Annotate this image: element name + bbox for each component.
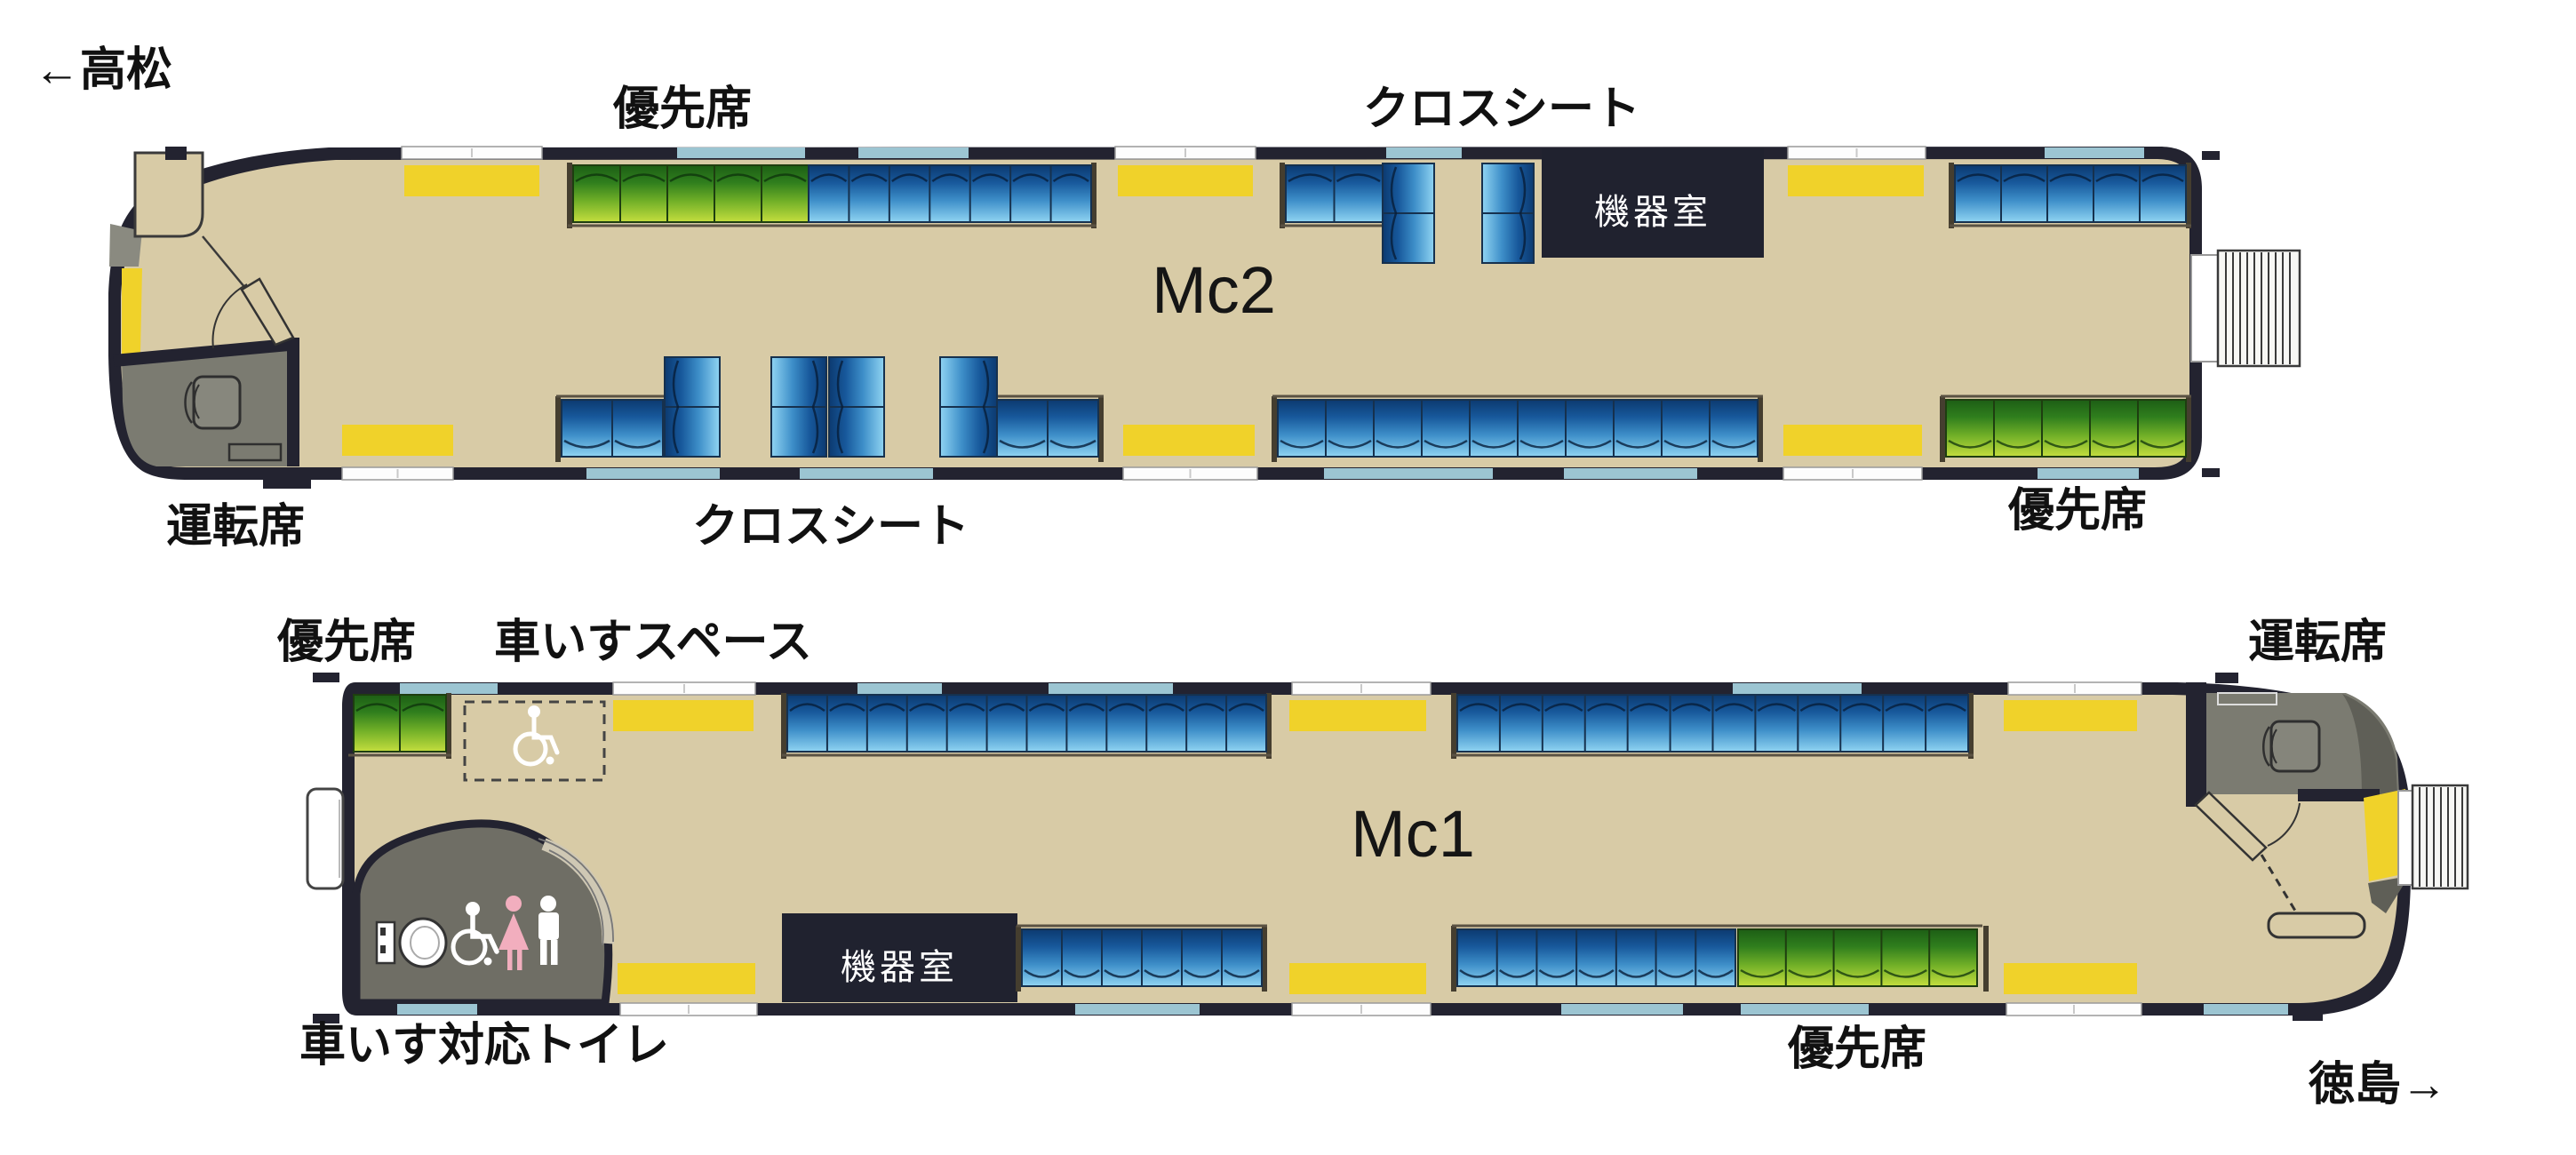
seat-end-panel bbox=[555, 396, 561, 462]
seat-end-panel bbox=[1451, 926, 1456, 992]
seat-bench-blue bbox=[782, 695, 1272, 755]
window bbox=[397, 1004, 477, 1015]
label-wheelchair-space: 車いすスペース bbox=[494, 618, 812, 667]
label-priority-mc2-bottom: 優先席 bbox=[2008, 487, 2147, 536]
label-driver-mc2: 運転席 bbox=[166, 503, 305, 552]
seat-end-panel bbox=[1940, 396, 1945, 462]
door-mat bbox=[404, 165, 539, 196]
seat-end-panel bbox=[1949, 163, 1954, 228]
cross-seat bbox=[940, 357, 997, 457]
door-mat bbox=[342, 425, 453, 456]
label-crossseat-mc2-top: クロスシート bbox=[1363, 85, 1640, 134]
door-mat bbox=[1123, 425, 1255, 456]
cross-seat bbox=[771, 357, 826, 457]
door-mat bbox=[1118, 165, 1253, 196]
label-priority-mc1-top: 優先席 bbox=[277, 618, 416, 667]
gangway-plate bbox=[307, 789, 343, 888]
mc2-driver-seat bbox=[194, 377, 240, 428]
door-mat bbox=[1788, 165, 1924, 196]
window bbox=[1733, 683, 1862, 694]
seat-end-panel bbox=[1016, 926, 1021, 992]
door-mat bbox=[1783, 425, 1922, 456]
window bbox=[800, 468, 933, 479]
seat-bench-blue bbox=[1272, 396, 1763, 457]
door-mat bbox=[1289, 700, 1426, 731]
mc2-rear-gangway bbox=[2191, 151, 2300, 477]
window bbox=[2204, 1004, 2288, 1015]
seat-end-panel bbox=[781, 693, 786, 759]
window bbox=[1561, 1004, 1683, 1015]
seat-bench-blue bbox=[803, 165, 1097, 226]
window bbox=[1324, 468, 1493, 479]
window bbox=[1075, 1004, 1200, 1015]
seat-bench-blue bbox=[1017, 926, 1267, 986]
seat-bench-green bbox=[568, 165, 814, 226]
seat-bench-blue bbox=[992, 396, 1104, 457]
seat-bench-green bbox=[348, 695, 451, 755]
seat-end-panel bbox=[1280, 163, 1285, 228]
door-mat bbox=[2004, 700, 2137, 731]
seat-bench-blue bbox=[1452, 695, 1974, 755]
seat-bench-green bbox=[1733, 926, 1982, 986]
seat-bench-green bbox=[1941, 396, 2191, 457]
toilet-bowl-icon bbox=[377, 919, 446, 967]
label-driver-mc1: 運転席 bbox=[2248, 618, 2387, 667]
equipment-room-label-mc1: 機器室 bbox=[841, 938, 958, 990]
train-floorplan: ←高松 優先席 クロスシート 運転席 クロスシート 優先席 優先席 車いすスペー… bbox=[0, 0, 2576, 1155]
window bbox=[857, 683, 942, 694]
seat-end-panel bbox=[1451, 693, 1456, 759]
mc1-front-gangway bbox=[307, 673, 343, 1024]
mc2-front-cabinet bbox=[135, 153, 203, 236]
windbreak-panel bbox=[2269, 913, 2365, 937]
seat-bench-blue bbox=[1452, 926, 1741, 986]
car-label-mc1: Mc1 bbox=[1351, 796, 1475, 872]
mc2-front-door-strip bbox=[122, 268, 142, 357]
label-direction-takamatsu: ←高松 bbox=[34, 46, 172, 95]
window bbox=[1386, 147, 1462, 158]
car-label-mc2: Mc2 bbox=[1152, 252, 1276, 328]
floorplan-drawing bbox=[0, 0, 2576, 1155]
window bbox=[400, 683, 498, 694]
seat-end-panel bbox=[567, 163, 572, 228]
mc1-rear-gangway bbox=[2398, 785, 2468, 888]
door-mat bbox=[618, 963, 755, 994]
label-crossseat-mc2-bottom: クロスシート bbox=[692, 503, 969, 552]
seat-bench-blue bbox=[1950, 165, 2191, 226]
window bbox=[858, 147, 969, 158]
gangway-accordion bbox=[2218, 251, 2300, 366]
door-mat bbox=[2004, 963, 2137, 994]
label-direction-tokushima: 徳島→ bbox=[2309, 1061, 2447, 1110]
window bbox=[2038, 468, 2139, 479]
seat-bench-blue bbox=[1280, 165, 1388, 226]
door-mat bbox=[1289, 963, 1426, 994]
window bbox=[2045, 147, 2144, 158]
mc1-driver-seat bbox=[2271, 721, 2319, 771]
window bbox=[1564, 468, 1697, 479]
seat-bench-blue bbox=[556, 396, 668, 457]
door-mat bbox=[613, 700, 754, 731]
label-wheelchair-toilet: 車いす対応トイレ bbox=[299, 1022, 669, 1071]
window bbox=[1049, 683, 1173, 694]
cross-seat bbox=[1383, 163, 1434, 263]
label-priority-mc2-top: 優先席 bbox=[613, 85, 752, 134]
seat-end-panel bbox=[1272, 396, 1277, 462]
seat-end-panel bbox=[1983, 926, 1989, 992]
cross-seat bbox=[1482, 163, 1534, 263]
window bbox=[677, 147, 805, 158]
window bbox=[1741, 1004, 1869, 1015]
cross-seat bbox=[665, 357, 720, 457]
window bbox=[586, 468, 720, 479]
equipment-room-label-mc2: 機器室 bbox=[1594, 183, 1711, 235]
cross-seat bbox=[829, 357, 884, 457]
label-priority-mc1-bottom: 優先席 bbox=[1788, 1025, 1926, 1074]
